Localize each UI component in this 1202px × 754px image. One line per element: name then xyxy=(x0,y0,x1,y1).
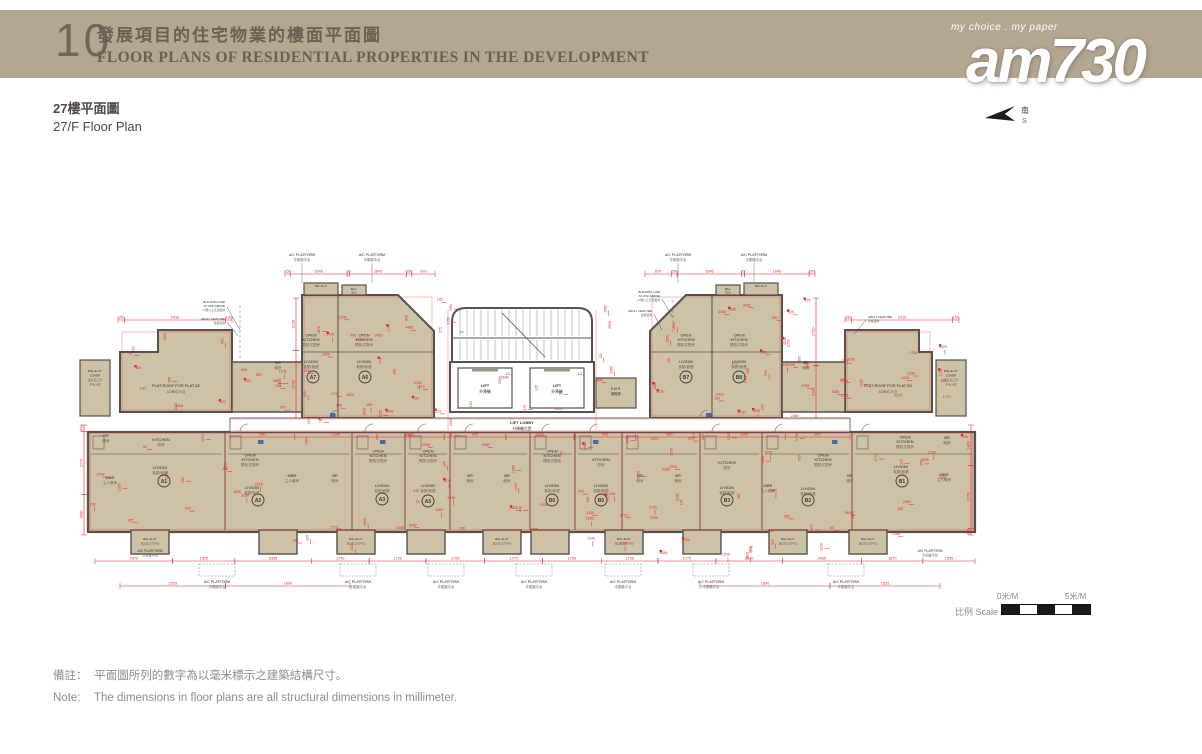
dim-value: 1035 xyxy=(728,308,736,312)
plan-label: BAL.&U.P. xyxy=(495,537,509,541)
dim-value: 1645 xyxy=(773,269,781,273)
dim-value: 150 xyxy=(953,315,959,319)
plan-label: KITCHEN xyxy=(152,437,170,442)
dim-value: 1645 xyxy=(385,410,393,414)
dim-value: 430 xyxy=(518,506,522,512)
dim-value: 1735 xyxy=(795,433,799,441)
dim-value: 75 xyxy=(416,500,420,504)
ac-platform-label: A/C PLATFORM xyxy=(610,580,636,584)
dim-value: 940 xyxy=(764,370,768,376)
dim-value: 1735 xyxy=(393,556,401,560)
dim-value: 2770 xyxy=(620,513,628,517)
plan-label: 睡房 xyxy=(331,478,339,483)
plan-label: KITCHEN xyxy=(592,457,610,462)
dim-value: 670 xyxy=(220,400,226,404)
dim-value: 200 xyxy=(90,502,96,506)
dim-value: 2335 xyxy=(447,496,455,500)
dim-value: 1735 xyxy=(625,556,633,560)
dim-value: 1795 xyxy=(939,368,943,376)
dim-value: 150 xyxy=(118,315,124,319)
dim-value: 430 xyxy=(336,527,342,531)
dim-value: 75 xyxy=(319,419,323,423)
dim-value: 905 xyxy=(241,368,247,372)
plan-label: 冷氣機平台 xyxy=(838,584,856,589)
dim-value: 150 xyxy=(845,315,851,319)
plan-label: BR xyxy=(332,473,338,478)
plan-label: 開放式廚房 xyxy=(241,462,259,467)
dim-value: 1800 xyxy=(363,408,367,416)
dim-value: 1870 xyxy=(651,437,659,441)
dim-value: 2770 xyxy=(874,454,878,462)
dim-value: 2370 xyxy=(130,556,138,560)
dim-value: 1645 xyxy=(314,269,322,273)
plan-label: 露台及工作平台 xyxy=(141,542,160,546)
dim-value: 130 xyxy=(413,397,419,401)
plan-label: 冷氣機平台 xyxy=(364,257,382,262)
dim-value: 1000 xyxy=(174,403,178,411)
plan-label: 開放式廚房 xyxy=(677,342,695,347)
lift-lobby-label: LIFT LOBBY xyxy=(510,420,534,425)
dim-value: 100 xyxy=(292,539,298,543)
dim-value: 1930 xyxy=(921,458,929,462)
dim-value: 130 xyxy=(140,387,146,391)
dim-value: 670 xyxy=(379,358,383,364)
dim-value: 670 xyxy=(280,406,286,410)
balcony xyxy=(407,530,445,554)
plan-label: 客廳/飯廳 xyxy=(893,469,909,474)
dim-value: 250 xyxy=(459,526,465,530)
dim-value: 2410 xyxy=(375,334,383,338)
dim-value: 2030 xyxy=(847,358,855,362)
plan-label: 睡房 xyxy=(466,478,474,483)
plan-label: BAL.&U.P. xyxy=(88,369,102,373)
dim-value: 1680 xyxy=(595,378,603,382)
plan-label: 開放式廚房 xyxy=(369,458,387,463)
dim-value: 1605 xyxy=(350,543,354,551)
plan-label: BR xyxy=(103,433,109,438)
dim-value: 300 xyxy=(771,539,775,545)
plan-label: KITCHEN xyxy=(302,337,319,342)
dim-value: 150 xyxy=(406,269,412,273)
plan-label: BAL.&U.P. xyxy=(861,537,875,541)
note-en-label: Note: xyxy=(53,687,91,709)
dim-value: 940 xyxy=(413,489,419,493)
ac-platform-label: A/C PLATFORM xyxy=(741,253,767,257)
plan-label: 開放式廚房 xyxy=(419,458,437,463)
dim-value: 2770 xyxy=(79,459,83,467)
plan-label: LIV/DIN xyxy=(375,483,389,488)
balcony xyxy=(531,530,569,554)
dim-value: 150 xyxy=(226,315,232,319)
dim-value: 1595 xyxy=(586,517,594,521)
plan-label: MBR xyxy=(764,483,773,488)
dim-value: 2150 xyxy=(447,317,451,325)
dim-value: 430 xyxy=(746,368,750,374)
ac-platform-label: A/C PLATFORM xyxy=(289,253,315,257)
plan-label: BAL.&U.P. xyxy=(944,369,958,373)
dim-value: 75 xyxy=(346,269,350,273)
ac-platform-label: A/C PLATFORM xyxy=(433,580,459,584)
dim-value: 1205 xyxy=(636,471,640,479)
dim-value: 325 xyxy=(449,431,453,437)
dim-value: 1905 xyxy=(859,379,863,387)
dim-value: 325 xyxy=(306,535,310,541)
dim-value: 1870 xyxy=(443,479,451,483)
dim-value: 3180 xyxy=(409,523,417,527)
dim-value: 2410 xyxy=(898,315,906,319)
flat-roof-a2-label: FLAT ROOF FOR FLAT A2 xyxy=(152,383,201,388)
dim-value: 75 xyxy=(741,269,745,273)
dim-value: 1905 xyxy=(798,356,802,364)
dim-value: 325 xyxy=(788,310,794,314)
lift-shaft xyxy=(458,368,512,408)
dim-value: 1000 xyxy=(201,434,205,442)
plan-label: 露台 xyxy=(351,291,357,295)
dim-value: 2410 xyxy=(716,392,724,396)
dim-value: 200 xyxy=(245,379,251,383)
plan-label: 主人睡房 xyxy=(285,478,300,483)
plan-label: 睡房 xyxy=(102,438,110,443)
dim-value: 1035 xyxy=(540,503,548,507)
lift-label: LIFT xyxy=(481,383,490,388)
dim-value: 1645 xyxy=(705,269,713,273)
plan-label: 冷氣機平台 xyxy=(350,584,368,589)
plan-label: MBR xyxy=(106,475,115,480)
dim-value: 905 xyxy=(472,432,478,436)
door-arc xyxy=(862,424,870,432)
dim-value: 1680 xyxy=(482,443,490,447)
dim-value: 2360 xyxy=(610,366,614,374)
plan-label: COVER xyxy=(90,374,100,378)
plan-label: 冷氣機平台 xyxy=(142,553,158,558)
dim-value: 2150 xyxy=(787,363,795,367)
dim-value: 375 xyxy=(578,490,584,494)
dim-value: 100 xyxy=(679,499,683,505)
dim-value: 2700 xyxy=(619,541,627,545)
note-zh-label: 備註： xyxy=(53,665,91,687)
plan-label: KITCHEN xyxy=(730,337,747,342)
dim-value: 2360 xyxy=(903,500,911,504)
flat-roof-b2-label: FLAT ROOF FOR FLAT B2 xyxy=(864,383,913,388)
unit-id-B1: B1 xyxy=(899,479,906,485)
lift-label: LIFT xyxy=(553,383,562,388)
dim-value: 940 xyxy=(750,546,754,552)
plan-label: A/C PLATFORM xyxy=(138,549,163,553)
dim-value: 375 xyxy=(438,327,442,333)
dim-value: 125 xyxy=(900,459,904,465)
dim-value: 250 xyxy=(761,350,767,354)
dim-value: 2425 xyxy=(322,353,330,357)
plan-label: BAL.&U.P. xyxy=(349,537,363,541)
dim-value: 100 xyxy=(714,396,720,400)
dim-value: 150 xyxy=(223,467,229,471)
dim-value: 375 xyxy=(732,362,738,366)
window-fixture xyxy=(593,440,599,444)
plan-label: BAL.&U.P. xyxy=(617,537,631,541)
plan-label: KITCHEN xyxy=(369,453,386,458)
dim-value: 2425 xyxy=(510,506,518,510)
dim-value: 2335 xyxy=(841,394,849,398)
plan-label: BAL.&U.P. xyxy=(781,537,795,541)
dim-value: 300 xyxy=(79,425,83,431)
plan-label: 開放式廚房 xyxy=(896,444,914,449)
notes: 備註： 平面圖所列的數字為以毫米標示之建築結構尺寸。 Note: The dim… xyxy=(53,665,457,710)
plan-label: 露台及工作平台 xyxy=(493,542,512,546)
plan-label: KITCHEN xyxy=(896,439,913,444)
dim-value: 1305 xyxy=(530,528,538,532)
dim-value: 2360 xyxy=(791,414,799,418)
plan-label: 客廳/飯廳 xyxy=(800,491,816,496)
dim-value: 2700 xyxy=(811,328,815,336)
dim-value: 1795 xyxy=(451,556,459,560)
dim-value: 985 xyxy=(167,377,171,383)
dim-value: 2100 xyxy=(586,511,594,515)
dim-value: 125 xyxy=(599,353,603,359)
unit-id-B7: B7 xyxy=(683,375,690,381)
lift-number: L2 xyxy=(578,372,582,376)
dim-value: 125 xyxy=(534,385,538,391)
unit-id-B5: B5 xyxy=(598,498,605,504)
dim-value: 225 xyxy=(435,409,441,413)
dim-value: 1800 xyxy=(761,581,769,585)
ac-platform-label: A/C PLATFORM xyxy=(833,580,859,584)
dim-value: 2050 xyxy=(718,310,726,314)
dim-value: 800 xyxy=(256,373,262,377)
window-fixture xyxy=(832,440,838,444)
plan-label: 客廳/飯廳 xyxy=(593,488,609,493)
plan-label: BR xyxy=(944,435,950,440)
dim-value: 985 xyxy=(737,493,741,499)
dim-value: 985 xyxy=(666,432,672,436)
dim-value: 800 xyxy=(404,315,408,321)
plan-label: KITCHEN xyxy=(814,457,831,462)
dim-value: 2180 xyxy=(892,532,900,536)
dim-value: 2370 xyxy=(810,524,814,532)
dim-value: 1770 xyxy=(509,556,517,560)
dim-value: 150 xyxy=(366,403,372,407)
ac-platform-label: A/C PLATFORM xyxy=(698,580,724,584)
dim-value: 3180 xyxy=(743,303,751,307)
dim-value: 2410 xyxy=(514,483,518,491)
scale-end-label: 5米/M xyxy=(1065,591,1086,602)
emr-label: E.M.R. xyxy=(611,387,621,391)
plan-label: 開放式廚房 xyxy=(543,458,561,463)
dim-value: 950 xyxy=(181,477,185,483)
plan-label: 建築裝飾 xyxy=(641,313,652,317)
window-fixture xyxy=(330,413,336,417)
plan-label: BR xyxy=(275,360,281,365)
plan-label: 客廳/飯廳 xyxy=(303,364,319,369)
dim-value: 2425 xyxy=(901,376,909,380)
dim-value: 2370 xyxy=(894,394,902,398)
unit-id-A5: A5 xyxy=(425,499,432,505)
plan-label: 客廳/飯廳 xyxy=(544,488,560,493)
dim-value: 1800 xyxy=(436,508,444,512)
dim-value: 1605 xyxy=(672,322,676,330)
dim-value: 1770 xyxy=(387,324,391,332)
dim-value: 1930 xyxy=(305,438,309,446)
dim-value: 2230 xyxy=(820,543,824,551)
plan-label: LIV/DIN xyxy=(720,485,734,490)
page: 10 發展項目的住宅物業的樓面平面圖 FLOOR PLANS OF RESIDE… xyxy=(0,0,1202,754)
dim-value: 1795 xyxy=(568,556,576,560)
dim-value: 1205 xyxy=(279,369,287,373)
dim-value: 1205 xyxy=(332,432,340,436)
plan-label: 冷氣機平台 xyxy=(294,257,312,262)
plan-label: LIV/DIN xyxy=(594,483,608,488)
unit-id-B2: B2 xyxy=(805,498,812,504)
dim-value: 1905 xyxy=(307,417,311,425)
dim-value: 1930 xyxy=(449,304,453,312)
dim-value: 50 xyxy=(559,451,563,455)
dim-value: 2180 xyxy=(662,467,670,471)
ac-platform-label: A/C PLATFORM xyxy=(665,253,691,257)
dim-value: 905 xyxy=(798,455,802,461)
plan-label: 睡房 xyxy=(503,478,511,483)
dim-value: 1595 xyxy=(766,529,774,533)
dim-value: 905 xyxy=(350,333,356,337)
unit-id-B6: B6 xyxy=(549,498,556,504)
plan-label: 27樓以上之建築線 xyxy=(202,308,225,312)
plan-label: 客廳/飯廳 xyxy=(420,488,436,493)
plan-label: BAL.&U.P. xyxy=(143,537,157,541)
dim-value: 1680 xyxy=(603,305,607,313)
dim-value: 2335 xyxy=(378,410,382,418)
dim-value: 670 xyxy=(420,269,426,273)
dim-value: 905 xyxy=(220,338,224,344)
dim-value: 1770 xyxy=(336,556,344,560)
dim-value: 1525 xyxy=(722,553,730,557)
dim-value: 1205 xyxy=(163,333,167,341)
plan-label: BAL.&U.P. xyxy=(755,284,768,288)
dim-value: 1800 xyxy=(284,581,292,585)
dim-value: 125 xyxy=(805,298,811,302)
balcony xyxy=(259,530,297,554)
dim-value: 2100 xyxy=(938,476,946,480)
dim-value: 2425 xyxy=(806,361,810,369)
dim-value: 375 xyxy=(523,405,527,411)
dim-value: 800 xyxy=(771,489,777,493)
plan-label: BR xyxy=(467,473,473,478)
plan-label: 客廳/飯廳 xyxy=(719,490,735,495)
dim-value: 1000 xyxy=(303,369,311,373)
dim-value: 2180 xyxy=(743,375,747,383)
scale-segments xyxy=(1001,604,1091,615)
dim-value: 130 xyxy=(897,507,903,511)
dim-value: 905 xyxy=(602,432,608,436)
dim-value: 1735 xyxy=(840,379,848,383)
plan-label: MBR xyxy=(288,473,297,478)
dim-value: 1595 xyxy=(945,556,953,560)
dim-value: 1905 xyxy=(199,556,207,560)
dim-value: 950 xyxy=(259,432,265,436)
dim-value: 1735 xyxy=(909,351,917,355)
dim-value: 1870 xyxy=(888,556,896,560)
plan-label: A2單位平台 xyxy=(167,389,186,394)
scale-start-label: 0米/M xyxy=(997,591,1018,602)
dim-value: 2410 xyxy=(171,315,179,319)
plan-label: 廚房 xyxy=(597,462,605,467)
dim-value: 2030 xyxy=(626,435,630,443)
plan-label: KITCHEN xyxy=(241,457,258,462)
plan-label: 客廳/飯廳 xyxy=(374,488,390,493)
dim-value: 75 xyxy=(558,391,562,395)
dim-value: 950 xyxy=(814,432,820,436)
stair-up-label: UP xyxy=(460,330,464,334)
plan-label: BR xyxy=(675,473,681,478)
plan-label: LIV/DIN xyxy=(153,465,167,470)
dim-value: 1795 xyxy=(801,384,809,388)
dim-value: 1770 xyxy=(765,450,773,454)
dim-value: 1605 xyxy=(233,490,241,494)
plan-label: 冷氣機平台 xyxy=(746,257,764,262)
plan-label: BR xyxy=(847,473,853,478)
dim-value: 50 xyxy=(143,445,147,449)
dim-value: 50 xyxy=(830,526,834,530)
dim-value: 225 xyxy=(962,435,968,439)
dim-value: 2100 xyxy=(291,320,295,328)
plan-label: BAL.&U.P. xyxy=(315,284,328,288)
dim-value: 2370 xyxy=(669,465,677,469)
scale-label: 比例 Scale : xyxy=(955,605,1003,618)
dim-value: 1645 xyxy=(501,375,509,379)
dim-value: 2410 xyxy=(555,407,563,411)
dim-value: 2150 xyxy=(422,443,430,447)
dim-value: 2050 xyxy=(449,418,453,426)
plan-label: 冷氣機平台 xyxy=(922,553,938,558)
dim-value: 1930 xyxy=(666,335,670,343)
window-fixture xyxy=(380,440,386,444)
dim-value: 1525 xyxy=(939,345,947,349)
staircase xyxy=(452,308,592,362)
dim-value: 1305 xyxy=(511,465,515,473)
window-fixture xyxy=(258,440,264,444)
dim-value: 1800 xyxy=(165,472,169,480)
dim-value: 200 xyxy=(131,346,135,352)
window-fixture xyxy=(706,413,712,417)
dim-value: 1735 xyxy=(331,392,339,396)
dim-value: 1305 xyxy=(752,409,760,413)
dim-value: 1800 xyxy=(79,510,83,518)
dim-value: 2700 xyxy=(291,380,295,388)
dim-value: 2100 xyxy=(811,388,815,396)
plan-label: KITCHEN xyxy=(718,460,736,465)
dim-value: 1645 xyxy=(363,518,367,526)
dim-value: 3180 xyxy=(241,493,249,497)
dim-value: 1595 xyxy=(356,338,364,342)
unit-id-A2: A2 xyxy=(255,498,262,504)
dim-value: 225 xyxy=(437,298,443,302)
lift-label-zh: 升降機 xyxy=(479,389,491,394)
dim-value: 3180 xyxy=(396,526,404,530)
plan-label: 睡房 xyxy=(943,440,951,445)
dim-value: 250 xyxy=(784,514,790,518)
plan-label: COVER xyxy=(946,374,956,378)
dim-value: 2050 xyxy=(608,321,612,329)
dim-value: 1305 xyxy=(117,483,121,491)
plan-label: 主人睡房 xyxy=(103,480,118,485)
dim-value: 2230 xyxy=(650,516,658,520)
dim-value: 50 xyxy=(667,358,671,362)
dim-value: 225 xyxy=(761,404,765,410)
plan-label: KITCHEN xyxy=(419,453,436,458)
dim-value: 1525 xyxy=(881,581,889,585)
ac-platform-label: A/C PLATFORM xyxy=(345,580,371,584)
dim-value: 150 xyxy=(671,269,677,273)
dim-value: 1645 xyxy=(374,269,382,273)
plan-label: LIV/DIN xyxy=(304,359,318,364)
dim-value: 2770 xyxy=(657,390,665,394)
